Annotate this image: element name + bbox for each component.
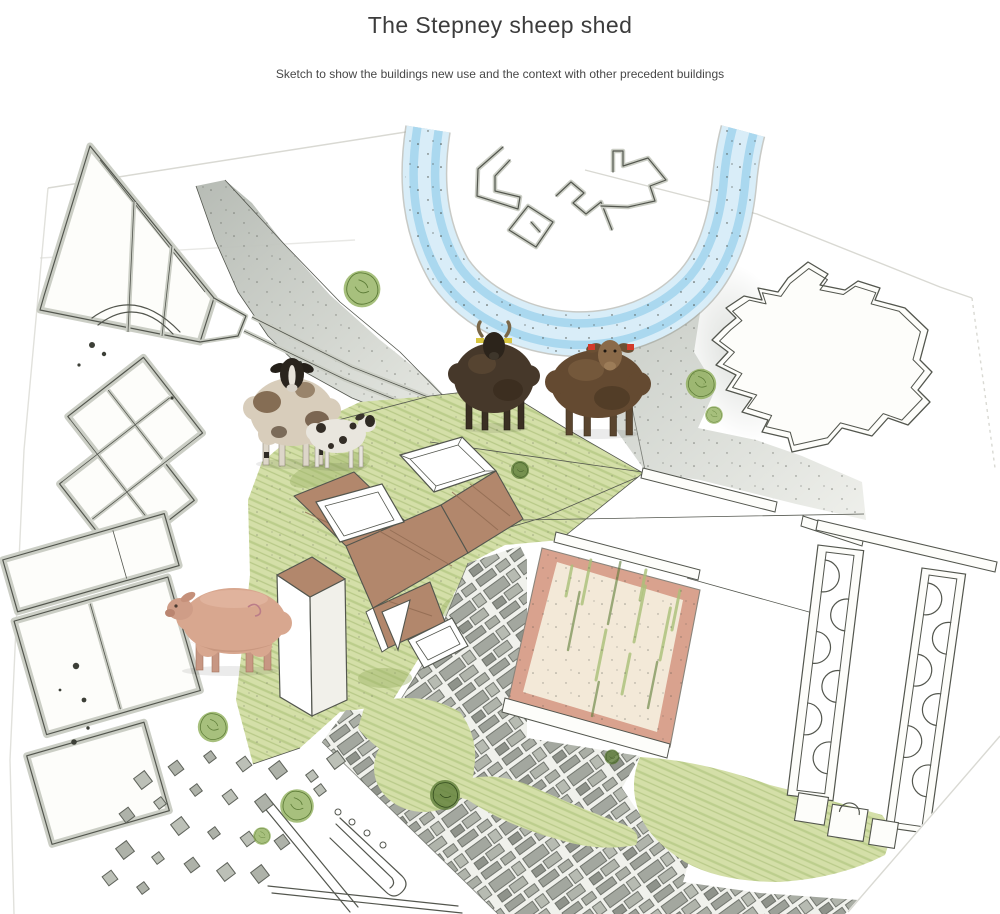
room-plan-building (0, 514, 243, 845)
arcade-building-north (787, 520, 997, 801)
page-header: The Stepney sheep shed Sketch to show th… (0, 0, 1000, 83)
site-sketch (0, 0, 1000, 914)
sketch-page: The Stepney sheep shed Sketch to show th… (0, 0, 1000, 914)
riverside-meander-buildings (477, 147, 666, 247)
page-title: The Stepney sheep shed (0, 12, 1000, 39)
river (424, 129, 743, 334)
page-subtitle: Sketch to show the buildings new use and… (273, 67, 728, 83)
